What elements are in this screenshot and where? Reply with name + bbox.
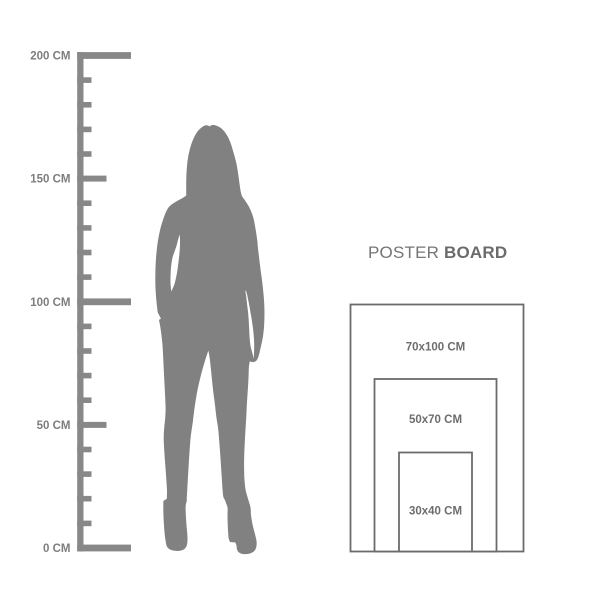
svg-text:50 CM: 50 CM (37, 420, 71, 432)
svg-text:100 CM: 100 CM (30, 297, 70, 309)
svg-text:POSTER BOARD: POSTER BOARD (368, 243, 507, 262)
svg-text:70x100 CM: 70x100 CM (406, 342, 465, 354)
svg-text:50x70 CM: 50x70 CM (409, 414, 462, 426)
svg-text:200 CM: 200 CM (30, 51, 70, 63)
svg-text:30x40 CM: 30x40 CM (409, 506, 462, 518)
svg-text:0 CM: 0 CM (43, 543, 70, 555)
svg-text:150 CM: 150 CM (30, 174, 70, 186)
